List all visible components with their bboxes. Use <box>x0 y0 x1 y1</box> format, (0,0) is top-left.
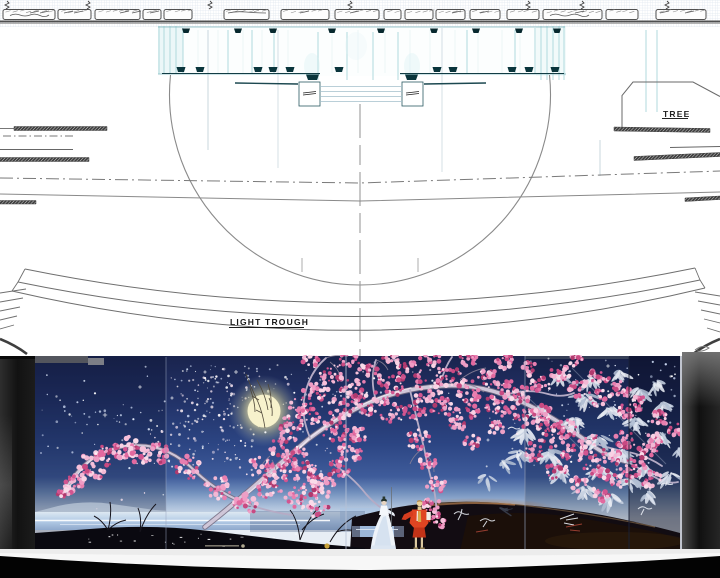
svg-text:LIGHT TROUGH: LIGHT TROUGH <box>230 317 309 327</box>
svg-text:TREE: TREE <box>663 109 690 119</box>
